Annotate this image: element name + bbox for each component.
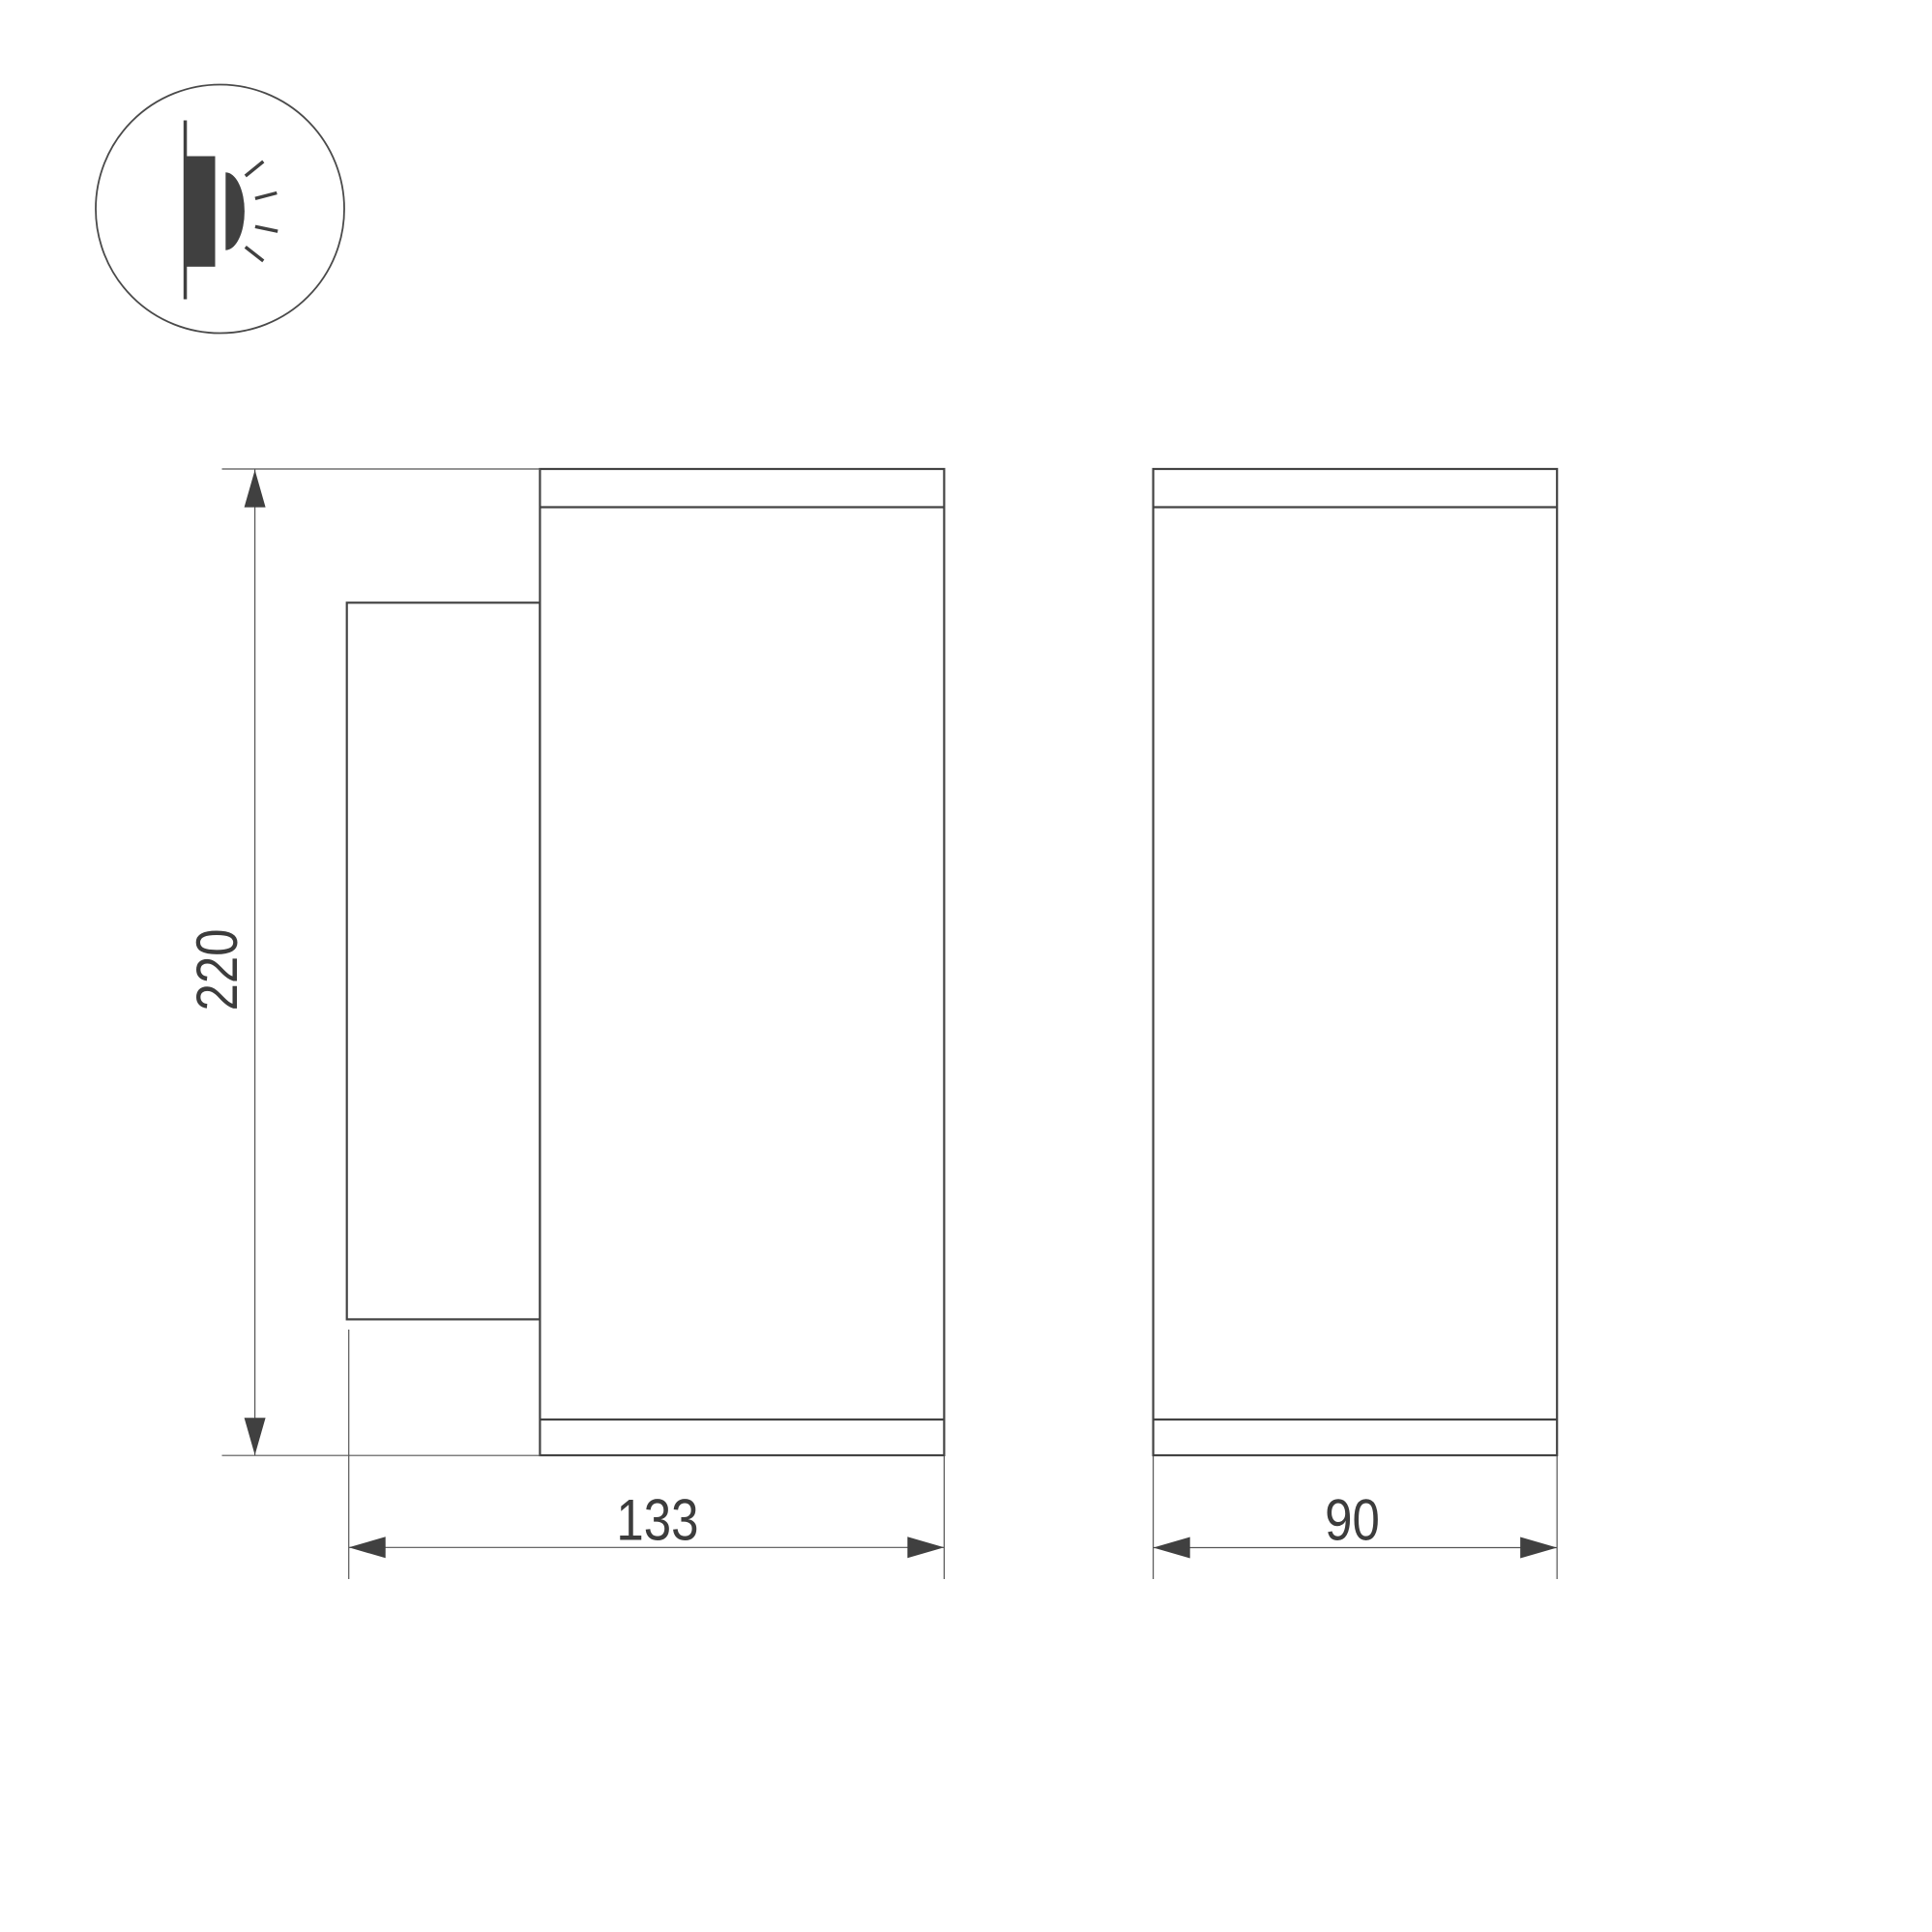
svg-text:90: 90 [1325, 1488, 1380, 1553]
svg-text:220: 220 [185, 928, 249, 1010]
svg-text:133: 133 [616, 1488, 698, 1553]
